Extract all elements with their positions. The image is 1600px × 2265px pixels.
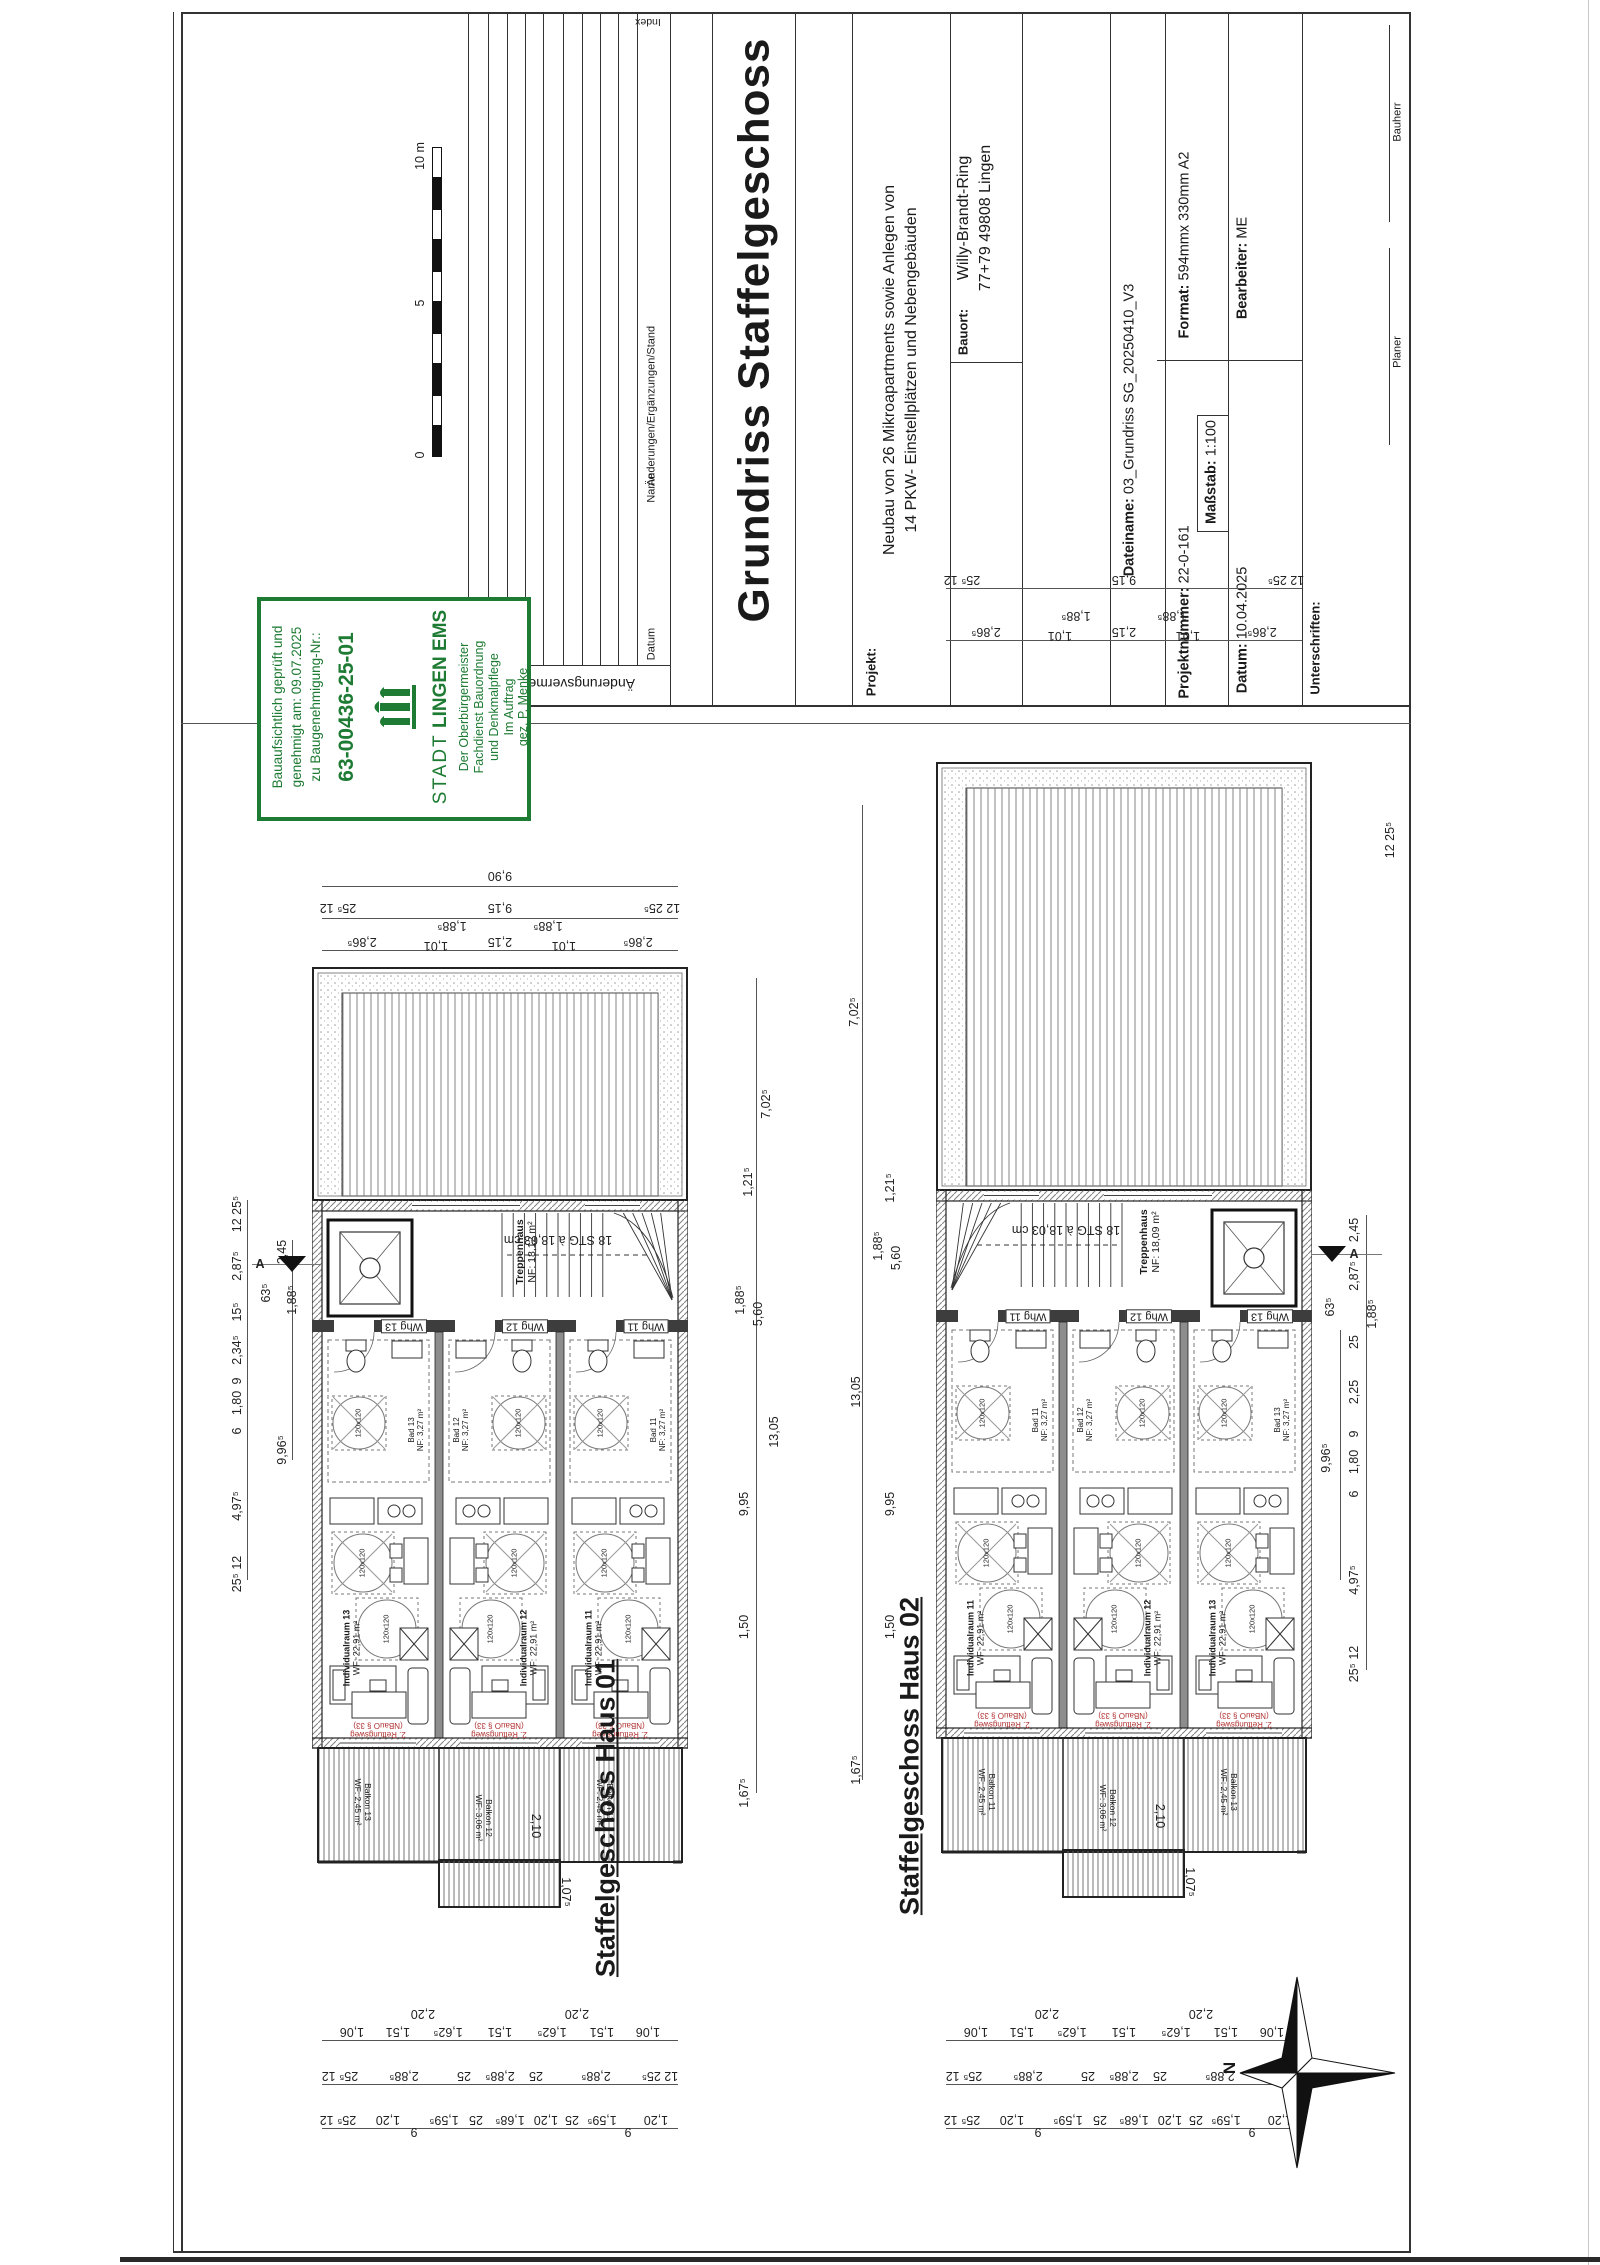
bath-label: Bad 13NF: 3,27 m² <box>407 1409 425 1451</box>
signature-line-bauherr <box>1389 25 1390 222</box>
dimension-label: 2,88⁵ <box>389 2069 419 2083</box>
dimension-label: 2,20 <box>1189 2007 1213 2021</box>
dimension-label: 9,90 <box>488 869 512 883</box>
dimension-label: 2,86⁵ <box>971 625 1001 639</box>
dimension-label: 7,02⁵ <box>759 1089 773 1119</box>
clearance-label: 120x120 <box>1135 1539 1144 1568</box>
dimension-label: 1,88⁵ <box>1157 609 1187 623</box>
dimension-line <box>1340 1330 1341 1580</box>
dimension-label: 2,86⁵ <box>347 935 377 949</box>
scale-bar-segment <box>432 240 442 271</box>
unit-tag: Whg 11 <box>623 1320 668 1333</box>
dimension-label: 1,07⁵ <box>559 1877 573 1907</box>
stamp-line3: zu Baugenehmigung-Nr.: <box>308 632 324 781</box>
dimension-label: 25 <box>1347 1335 1361 1349</box>
rescue-route-label: 2. Rettungsweg(NBauO § 33) <box>471 1721 527 1739</box>
bauort-label: Bauort: <box>957 309 972 355</box>
dimension-label: 1,88⁵ <box>285 1285 299 1315</box>
room-label: Individualraum 12WF: 22,91 m² <box>1143 1600 1164 1677</box>
revision-col-name: Name <box>646 473 659 502</box>
dimension-label: 1,80 <box>230 1391 244 1415</box>
stamp-dept1: Der Oberbürgermeister <box>457 643 471 772</box>
wall-left <box>312 1200 322 1748</box>
dimension-label: 1,21⁵ <box>741 1167 755 1197</box>
north-star <box>1240 1977 1395 2168</box>
signature-planer: Planer <box>1392 336 1405 368</box>
balcony-label: Balkon 13WF: 2,45 m² <box>1218 1769 1238 1816</box>
dimension-label: 25 <box>1093 2113 1107 2127</box>
scale-bar-segment <box>432 364 442 395</box>
stamp-line1: Bauaufsichtlich geprüft und <box>270 626 286 789</box>
scale-bar-segment <box>432 178 442 209</box>
dimension-label: 9,95 <box>883 1492 897 1516</box>
dimension-label: 9,96⁵ <box>275 1435 289 1465</box>
bath-label: Bad 13NF: 3,27 m² <box>1273 1399 1291 1441</box>
balcony-label: Balkon 12WF: 3,06 m² <box>1097 1785 1117 1832</box>
stairwell-label: TreppenhausNF: 18,12 m² <box>514 1219 538 1284</box>
dimension-label: 2,45 <box>1347 1218 1361 1242</box>
bearbeiter-field: Bearbeiter: ME <box>1235 217 1252 319</box>
dimension-label: 1,06 <box>340 2025 364 2039</box>
stamp-line2: genehmigt am: 09.07.2025 <box>289 627 305 788</box>
dimension-label: 13,05 <box>767 1416 781 1447</box>
clearance-label: 120x120 <box>487 1615 496 1644</box>
dimension-label: 25⁵ 12 <box>320 901 356 915</box>
drawing-sheet: Index Änderungen/Ergänzungen/Stand Name … <box>0 0 1600 2265</box>
party-wall <box>1059 1322 1067 1728</box>
dimension-label: 4,97⁵ <box>1347 1565 1361 1595</box>
projekt-label: Projekt: <box>865 648 880 696</box>
room-label: Individualraum 12WF: 22,91 m² <box>519 1610 540 1687</box>
dimension-label: 25 <box>529 2069 543 2083</box>
unit-tag: Whg 13 <box>1247 1310 1293 1323</box>
dimension-label: 12 25⁵ <box>642 2069 678 2083</box>
dimension-label: 25 <box>469 2113 483 2127</box>
elevator <box>328 1220 412 1316</box>
scale-bar-segment <box>432 271 442 302</box>
dimension-label: 5,60 <box>751 1302 765 1326</box>
bath-label: Bad 12NF: 3,27 m² <box>452 1409 470 1451</box>
dimension-label: 2,88⁵ <box>1013 2069 1043 2083</box>
unit-tag: Whg 12 <box>1126 1310 1172 1323</box>
dimension-label: 1,20 <box>1158 2113 1182 2127</box>
roof-terrace <box>313 968 687 1200</box>
dimension-line <box>247 1200 248 1580</box>
dimension-label: 1,06 <box>964 2025 988 2039</box>
stamp-dept3: und Denkmalpflege <box>487 653 501 761</box>
rescue-route-label: 2. Rettungsweg(NBauO § 33) <box>1095 1711 1151 1729</box>
dimension-line <box>322 918 678 919</box>
dimension-label: 1,01 <box>552 939 576 953</box>
stairwell-label: TreppenhausNF: 18,09 m² <box>1138 1209 1162 1274</box>
dimension-label: 2,10 <box>529 1814 543 1838</box>
clearance-label: 120x120 <box>511 1549 520 1578</box>
stamp-dept5: gez. P. Menke <box>516 668 530 746</box>
section-letter: A <box>1349 1247 1358 1261</box>
stamp-dept4: Im Auftrag <box>502 679 516 736</box>
signature-bauherr: Bauherr <box>1392 102 1405 141</box>
dimension-label: 1,62⁵ <box>433 2025 463 2039</box>
dimension-line <box>756 978 757 1793</box>
scan-edge-bottom <box>120 2257 1600 2262</box>
dimension-label: 1,51 <box>1010 2025 1034 2039</box>
balconies <box>318 1748 682 1907</box>
dimension-label: 2,88⁵ <box>1109 2069 1139 2083</box>
dimension-label: 4,97⁵ <box>230 1491 244 1521</box>
dimension-label: 1,88⁵ <box>733 1285 747 1315</box>
dimension-label: 2,25 <box>1347 1380 1361 1404</box>
signature-line-planer <box>1389 248 1390 445</box>
clearance-label: 120x120 <box>1249 1605 1258 1634</box>
dimension-label: 25 <box>1081 2069 1095 2083</box>
dimension-label: 6 <box>1347 1491 1361 1498</box>
bath-label: Bad 11NF: 3,27 m² <box>1031 1399 1049 1441</box>
format-field: Format: 594mmx 330mm A2 <box>1177 152 1194 339</box>
dimension-label: 1,51 <box>1112 2025 1136 2039</box>
frame-left-outer <box>173 12 174 2253</box>
corridor-wall <box>936 1190 1312 1201</box>
sheet-edge-right <box>1588 0 1589 2265</box>
dimension-label: 1,88⁵ <box>1365 1299 1379 1329</box>
scale-label-5: 5 <box>413 300 427 307</box>
dimension-label: 12 25⁵ <box>644 901 680 915</box>
frame-left <box>181 12 183 2253</box>
clearance-label: 120x120 <box>1111 1605 1120 1634</box>
scale-bar-segment <box>432 209 442 240</box>
dimension-label: 1,50 <box>737 1615 751 1639</box>
bath-label: Bad 11NF: 3,27 m² <box>649 1409 667 1451</box>
dimension-label: 9 <box>1347 1431 1361 1438</box>
dimension-label: 25⁵ 12 <box>320 2113 356 2127</box>
dimension-label: 25⁵ 12 <box>946 2069 982 2083</box>
clearance-label: 120x120 <box>515 1409 524 1438</box>
dimension-label: 1,01 <box>1048 629 1072 643</box>
clearance-label: 120x120 <box>1225 1539 1234 1568</box>
room-label: Individualraum 13WF: 22,91 m² <box>1208 1600 1229 1677</box>
dimension-label: 6 <box>230 1428 244 1435</box>
dimension-label: 1,51 <box>386 2025 410 2039</box>
clearance-label: 120x120 <box>597 1409 606 1438</box>
wall-left <box>936 1190 946 1738</box>
projekt-line2: 14 PKW- Einstellplätzen und Nebengebäude… <box>903 207 921 532</box>
dimension-label: 1,20 <box>644 2113 668 2127</box>
party-wall <box>556 1332 564 1738</box>
scale-label-0: 0 <box>413 452 427 459</box>
dimension-label: 7,02⁵ <box>847 997 861 1027</box>
bauort-line2: 77+79 49808 Lingen <box>977 145 995 291</box>
dimension-label: 1,80 <box>1347 1450 1361 1474</box>
clearance-label: 120x120 <box>1139 1399 1148 1428</box>
dimension-label: 1,67⁵ <box>737 1778 751 1808</box>
dimension-label: 9,15 <box>1112 573 1136 587</box>
dimension-label: 9 <box>230 1378 244 1385</box>
rescue-route-label: 2. Rettungsweg(NBauO § 33) <box>350 1721 406 1739</box>
stamp-city-name: STADT LINGEN EMS <box>430 610 452 804</box>
clearance-label: 120x120 <box>383 1615 392 1644</box>
dimension-line <box>322 2084 678 2085</box>
dimension-label: 1,68⁵ <box>1119 2113 1149 2127</box>
wall-right <box>1302 1190 1312 1738</box>
plan-haus-02 <box>936 762 1312 1900</box>
dimension-label: 1,01 <box>424 939 448 953</box>
dimension-label: 1,62⁵ <box>537 2025 567 2039</box>
plan-caption: Staffelgeschoss Haus 01 <box>590 1659 621 1977</box>
dimension-label: 63⁵ <box>1323 1297 1337 1316</box>
section-marker-a <box>1318 1246 1346 1262</box>
dimension-label: 25⁵ 12 <box>322 2069 358 2083</box>
dimension-label: 1,20 <box>534 2113 558 2127</box>
clearance-label: 120x120 <box>601 1549 610 1578</box>
dimension-label: 25⁵ 12 <box>1347 1646 1361 1682</box>
unit-tag: Whg 13 <box>381 1320 427 1333</box>
dimension-label: 9,96⁵ <box>1319 1443 1333 1473</box>
dimension-label: 1,62⁵ <box>1057 2025 1087 2039</box>
dimension-label: 1,88⁵ <box>437 919 467 933</box>
dimension-label: 1,20 <box>1000 2113 1024 2127</box>
dimension-label: 25⁵ 12 <box>944 573 980 587</box>
scale-bar-segment <box>432 147 442 178</box>
dimension-label: 1,51 <box>488 2025 512 2039</box>
stamp-city-logo <box>369 676 425 738</box>
bath-label: Bad 12NF: 3,27 m² <box>1076 1399 1094 1441</box>
dimension-label: 2,86⁵ <box>623 935 653 949</box>
stamp-number: 63-00436-25-01 <box>335 632 359 781</box>
section-letter: A <box>255 1257 264 1271</box>
section-marker-a <box>278 1256 306 1272</box>
rescue-route-label: 2. Rettungsweg(NBauO § 33) <box>1216 1711 1272 1729</box>
dimension-label: 1,59⁵ <box>1053 2113 1083 2127</box>
unit-tag: Whg 11 <box>1005 1310 1050 1323</box>
dimension-line <box>1366 1215 1367 1670</box>
plan-haus-01 <box>312 967 688 1910</box>
dateiname-field: Dateiname: 03_Grundriss SG_20250410_V3 <box>1122 284 1139 577</box>
dimension-label: 1,62⁵ <box>1161 2025 1191 2039</box>
drawing-title: Grundriss Staffelgeschoss <box>730 38 781 623</box>
dimension-label: 2,88⁵ <box>581 2069 611 2083</box>
dimension-label: 9,15 <box>488 901 512 915</box>
dimension-label: 9 <box>411 2125 418 2139</box>
dimension-label: 2,15 <box>1112 625 1136 639</box>
clearance-label: 120x120 <box>625 1615 634 1644</box>
scale-bar-segment <box>432 302 442 333</box>
dimension-label: 25 <box>1153 2069 1167 2083</box>
dimension-label: 12 25⁵ <box>1268 573 1304 587</box>
dimension-label: 1,20 <box>376 2113 400 2127</box>
projekt-line1: Neubau von 26 Mikroapartments sowie Anle… <box>881 185 899 555</box>
dimension-line <box>322 950 678 951</box>
dimension-label: 2,20 <box>565 2007 589 2021</box>
dimension-label: 1,51 <box>590 2025 614 2039</box>
rescue-route-label: 2. Rettungsweg(NBauO § 33) <box>974 1711 1030 1729</box>
dimension-line <box>946 640 1302 641</box>
dimension-label: 25 <box>457 2069 471 2083</box>
clearance-label: 120x120 <box>1007 1605 1016 1634</box>
balcony-label: Balkon 13WF: 2,45 m² <box>352 1779 372 1826</box>
roof-terrace <box>937 763 1311 1190</box>
dimension-line <box>292 1240 293 1460</box>
balconies <box>942 1738 1306 1897</box>
dimension-label: 12 25⁵ <box>1383 822 1397 858</box>
dimension-label: 1,21⁵ <box>883 1173 897 1203</box>
dimension-label: 63⁵ <box>259 1283 273 1302</box>
dimension-label: 2,34⁵ <box>230 1335 244 1365</box>
frame-right <box>1409 12 1411 2253</box>
dimension-label: 1,88⁵ <box>871 1231 885 1261</box>
party-wall <box>1180 1322 1188 1728</box>
dimension-label: 9 <box>1035 2125 1042 2139</box>
scale-bar-segment <box>432 333 442 364</box>
party-wall <box>435 1332 443 1738</box>
dimension-label: 2,86⁵ <box>1247 625 1277 639</box>
dimension-label: 12 25⁵ <box>230 1196 244 1232</box>
plan-caption: Staffelgeschoss Haus 02 <box>894 1597 925 1915</box>
bauort-line1: Willy-Brandt-Ring <box>955 156 973 280</box>
unit-tag: Whg 12 <box>502 1320 548 1333</box>
scale-bar-segment <box>432 395 442 426</box>
scale-label-10m: 10 m <box>413 142 427 170</box>
dimension-label: 9 <box>625 2125 632 2139</box>
dimension-label: 2,87⁵ <box>1347 1261 1361 1291</box>
dimension-label: 5,60 <box>889 1246 903 1270</box>
elevator <box>1212 1210 1296 1306</box>
unterschriften-label: Unterschriften: <box>1309 601 1324 694</box>
massstab-field: Maßstab: 1:100 <box>1204 420 1221 524</box>
dimension-label: 2,20 <box>411 2007 435 2021</box>
revision-col-index: Index <box>635 16 661 28</box>
dimension-label: 2,10 <box>1153 1804 1167 1828</box>
revision-col-changes: Änderungen/Ergänzungen/Stand <box>646 326 659 486</box>
frame-bottom <box>173 2251 1411 2253</box>
dimension-label: 2,87⁵ <box>230 1251 244 1281</box>
approval-stamp: Bauaufsichtlich geprüft und genehmigt am… <box>257 597 531 821</box>
dimension-label: 2,15 <box>488 935 512 949</box>
north-arrow <box>1222 1965 1412 2180</box>
room-label: Individualraum 13WF: 22,91 m² <box>342 1610 363 1687</box>
corridor-wall <box>312 1200 688 1211</box>
dimension-label: 15⁵ <box>230 1302 244 1321</box>
dimension-label: 1,59⁵ <box>587 2113 617 2127</box>
dimension-line <box>322 886 678 887</box>
scale-bar-segment <box>432 426 442 457</box>
dimension-label: 1,01 <box>1176 629 1200 643</box>
stamp-dept2: Fachdienst Bauordnung <box>472 641 486 774</box>
dimension-label: 13,05 <box>849 1376 863 1407</box>
dimension-label: 25 <box>565 2113 579 2127</box>
dimension-line <box>862 805 863 1780</box>
clearance-label: 120x120 <box>1221 1399 1230 1428</box>
dimension-label: 25 <box>1189 2113 1203 2127</box>
dimension-label: 1,67⁵ <box>849 1755 863 1785</box>
dimension-label: 9,95 <box>737 1492 751 1516</box>
dimension-label: 1,88⁵ <box>1061 609 1091 623</box>
dimension-label: 1,06 <box>636 2025 660 2039</box>
dimension-label: 25⁵ 12 <box>230 1556 244 1592</box>
dimension-line <box>322 2040 678 2041</box>
dimension-line <box>946 588 1302 589</box>
stair-note-label: 18 STG à 18,03 cm <box>1012 1223 1120 1237</box>
dimension-label: 2,88⁵ <box>485 2069 515 2083</box>
balcony-label: Balkon 11WF: 2,45 m² <box>976 1769 996 1816</box>
clearance-label: 120x120 <box>979 1399 988 1428</box>
dimension-label: 1,68⁵ <box>495 2113 525 2127</box>
frame-top <box>181 12 1411 14</box>
dimension-label: 2,20 <box>1035 2007 1059 2021</box>
balcony-label: Balkon 12WF: 3,06 m² <box>473 1795 493 1842</box>
stair-note-label: 18 STG à 18,03 cm <box>504 1233 612 1247</box>
dimension-label: 1,88⁵ <box>533 919 563 933</box>
dimension-label: 1,07⁵ <box>1183 1867 1197 1897</box>
wall-right <box>678 1200 688 1748</box>
clearance-label: 120x120 <box>355 1409 364 1438</box>
dimension-label: 1,59⁵ <box>429 2113 459 2127</box>
north-label: N <box>1220 2062 1240 2074</box>
revision-col-datum: Datum <box>646 628 659 660</box>
dimension-label: 25⁵ 12 <box>944 2113 980 2127</box>
clearance-label: 120x120 <box>983 1539 992 1568</box>
room-label: Individualraum 11WF: 22,91 m² <box>966 1600 987 1676</box>
clearance-label: 120x120 <box>359 1549 368 1578</box>
staircase <box>951 1203 1122 1290</box>
